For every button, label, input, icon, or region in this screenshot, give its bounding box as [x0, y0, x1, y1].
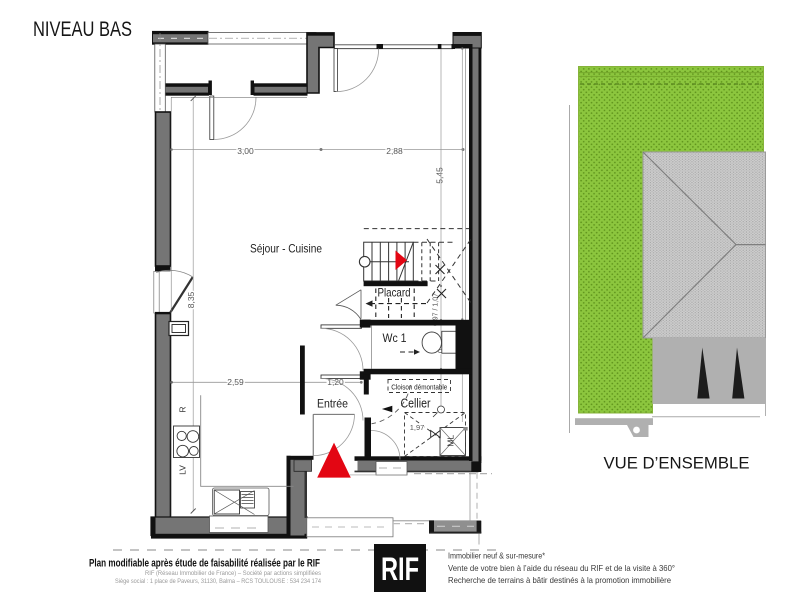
svg-text:Wc 1: Wc 1: [383, 331, 407, 345]
svg-text:Recherche de terrains à bâtir: Recherche de terrains à bâtir destinés à…: [448, 576, 671, 585]
svg-text:Plan modifiable après étude de: Plan modifiable après étude de faisabili…: [89, 558, 320, 570]
svg-text:Immobilier neuf & sur-mesure*: Immobilier neuf & sur-mesure*: [448, 552, 546, 561]
svg-text:RIF (Réseau Immobilier de Fran: RIF (Réseau Immobilier de France) – Soci…: [145, 570, 322, 577]
svg-text:Placard: Placard: [378, 286, 411, 300]
svg-text:1,97: 1,97: [410, 423, 425, 432]
svg-text:R: R: [178, 406, 188, 412]
svg-text:RIF: RIF: [381, 551, 419, 587]
svg-text:Séjour - Cuisine: Séjour - Cuisine: [250, 242, 322, 256]
svg-text:Siège social : 1 place de Pave: Siège social : 1 place de Paveurs, 31130…: [115, 578, 321, 585]
svg-text:2,88: 2,88: [386, 146, 403, 156]
svg-text:Cloison démontable: Cloison démontable: [391, 384, 447, 391]
svg-text:2,59: 2,59: [227, 377, 244, 387]
svg-text:8,35: 8,35: [186, 291, 196, 308]
svg-text:5,45: 5,45: [435, 167, 445, 184]
svg-text:LV: LV: [178, 465, 188, 475]
svg-text:Cellier: Cellier: [401, 397, 431, 411]
svg-text:3,00: 3,00: [237, 146, 254, 156]
svg-text:Vente de votre bien à l’aide d: Vente de votre bien à l’aide du réseau d…: [448, 564, 675, 573]
svg-text:VUE D’ENSEMBLE: VUE D’ENSEMBLE: [604, 454, 750, 473]
svg-text:ML: ML: [446, 435, 456, 447]
svg-text:NIVEAU BAS: NIVEAU BAS: [33, 18, 132, 41]
svg-text:Entrée: Entrée: [317, 397, 348, 411]
